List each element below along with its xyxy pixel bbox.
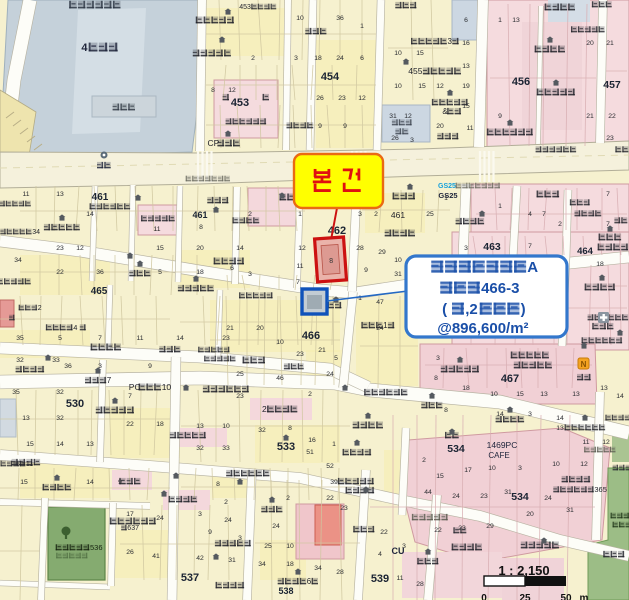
svg-text:10: 10 [286, 543, 294, 550]
svg-text:13: 13 [512, 17, 520, 24]
svg-text:1: 1 [298, 211, 302, 218]
svg-text:24: 24 [326, 371, 334, 378]
svg-text:11: 11 [26, 461, 33, 468]
svg-text:534: 534 [447, 443, 465, 455]
svg-text:7: 7 [528, 243, 532, 250]
svg-text:14: 14 [556, 415, 564, 422]
svg-text:24: 24 [376, 325, 384, 332]
svg-text:14: 14 [616, 393, 624, 400]
svg-text:10: 10 [552, 461, 560, 468]
svg-text:11: 11 [396, 575, 403, 582]
svg-text:34: 34 [14, 257, 22, 264]
svg-text:14: 14 [176, 335, 184, 342]
svg-text:12: 12 [436, 83, 444, 90]
svg-text:26: 26 [316, 95, 324, 102]
svg-text:21: 21 [318, 347, 326, 354]
svg-text:7: 7 [542, 211, 546, 218]
svg-text:13: 13 [540, 391, 548, 398]
svg-text:11: 11 [466, 125, 473, 132]
svg-text:18: 18 [286, 561, 294, 568]
svg-text:2: 2 [38, 305, 42, 312]
svg-text:463: 463 [483, 241, 501, 253]
svg-text:8: 8 [329, 258, 333, 265]
svg-text:536: 536 [90, 543, 103, 552]
svg-text:8: 8 [199, 224, 203, 231]
svg-text:31: 31 [394, 271, 402, 278]
svg-text:10: 10 [394, 50, 402, 57]
svg-text:461: 461 [391, 210, 405, 220]
svg-text:6: 6 [360, 55, 364, 62]
svg-text:3: 3 [518, 465, 522, 472]
svg-text:2: 2 [248, 211, 252, 218]
svg-text:15: 15 [436, 473, 444, 480]
svg-text:GS25: GS25 [438, 191, 457, 200]
svg-text:455: 455 [408, 66, 422, 76]
svg-text:18: 18 [196, 269, 204, 276]
svg-text:466-3: 466-3 [481, 280, 519, 297]
svg-text:25: 25 [236, 371, 244, 378]
svg-text:34: 34 [258, 561, 266, 568]
svg-text:36: 36 [64, 363, 72, 370]
svg-text:9: 9 [208, 529, 212, 536]
svg-text:8: 8 [434, 375, 438, 382]
svg-text:7: 7 [107, 376, 112, 385]
svg-text:26: 26 [126, 549, 134, 556]
svg-text:36: 36 [336, 15, 344, 22]
svg-text:456: 456 [512, 76, 530, 88]
svg-text:22: 22 [126, 421, 134, 428]
svg-text:18: 18 [314, 55, 322, 62]
svg-text:15: 15 [26, 441, 34, 448]
svg-text:15: 15 [462, 103, 470, 110]
svg-text:10: 10 [222, 423, 230, 430]
svg-text:24: 24 [272, 523, 280, 530]
svg-text:461: 461 [192, 210, 207, 220]
svg-text:28: 28 [336, 569, 344, 576]
svg-text:GS25: GS25 [438, 183, 456, 190]
svg-text:14: 14 [86, 211, 94, 218]
svg-text:31: 31 [566, 507, 574, 514]
svg-text:465: 465 [91, 286, 108, 297]
svg-text:3: 3 [248, 271, 252, 278]
svg-text:12: 12 [580, 461, 588, 468]
svg-text:@896,600/m²: @896,600/m² [437, 320, 528, 337]
svg-text:8: 8 [211, 87, 215, 94]
svg-text:N: N [581, 360, 587, 369]
svg-text:6: 6 [307, 577, 312, 586]
svg-text:9: 9 [148, 363, 152, 370]
svg-text:12: 12 [404, 113, 412, 120]
svg-text:32: 32 [196, 445, 204, 452]
svg-text:14: 14 [56, 441, 64, 448]
svg-text:8: 8 [288, 425, 292, 432]
svg-text:20: 20 [586, 40, 594, 47]
svg-text:,2: ,2 [465, 301, 478, 318]
svg-text:1: 1 [498, 17, 502, 24]
svg-text:24: 24 [336, 55, 344, 62]
svg-text:464: 464 [577, 246, 594, 257]
svg-text:23: 23 [222, 335, 230, 342]
svg-text:4: 4 [81, 42, 88, 54]
svg-text:2: 2 [558, 221, 562, 228]
svg-text:5: 5 [58, 335, 62, 342]
svg-text:24: 24 [156, 515, 164, 522]
svg-text:453: 453 [231, 97, 249, 109]
svg-text:CAFE: CAFE [488, 451, 509, 460]
svg-text:12: 12 [358, 95, 366, 102]
svg-text:3: 3 [528, 411, 532, 418]
svg-text:33: 33 [222, 445, 230, 452]
svg-text:3: 3 [358, 211, 362, 218]
svg-text:36: 36 [96, 269, 104, 276]
svg-text:32: 32 [258, 427, 266, 434]
svg-text:0: 0 [481, 593, 487, 600]
svg-text:462: 462 [328, 225, 346, 237]
svg-text:13: 13 [572, 391, 580, 398]
svg-text:530: 530 [66, 398, 84, 410]
svg-text:20: 20 [256, 325, 264, 332]
svg-text:12: 12 [602, 439, 610, 446]
svg-text:25: 25 [264, 543, 272, 550]
svg-text:23: 23 [480, 493, 488, 500]
svg-text:533: 533 [277, 441, 295, 453]
svg-text:17: 17 [126, 511, 134, 518]
svg-text:10: 10 [394, 83, 402, 90]
svg-text:(: ( [442, 301, 447, 318]
svg-text:23: 23 [340, 505, 348, 512]
svg-text:28: 28 [416, 581, 424, 588]
svg-text:7: 7 [606, 191, 610, 198]
svg-text:2: 2 [224, 499, 228, 506]
svg-text:32: 32 [56, 389, 64, 396]
svg-text:17: 17 [464, 467, 472, 474]
svg-text:22: 22 [326, 495, 334, 502]
svg-text:24: 24 [224, 517, 232, 524]
svg-text:52: 52 [326, 463, 334, 470]
svg-text:35: 35 [16, 335, 24, 342]
svg-text:): ) [521, 301, 526, 318]
svg-text:A: A [527, 259, 538, 276]
svg-text:15: 15 [418, 83, 426, 90]
svg-text:21: 21 [606, 40, 614, 47]
svg-text:39: 39 [330, 479, 338, 486]
svg-text:13: 13 [600, 385, 608, 392]
svg-text:537: 537 [181, 572, 199, 584]
svg-text:637: 637 [127, 525, 139, 532]
svg-text:23: 23 [56, 245, 64, 252]
svg-text:22: 22 [434, 527, 442, 534]
svg-text:4: 4 [73, 323, 77, 332]
svg-text:23: 23 [458, 525, 466, 532]
svg-text:24: 24 [452, 493, 460, 500]
svg-text:20: 20 [436, 123, 444, 130]
svg-text:15: 15 [156, 245, 164, 252]
svg-text:538: 538 [278, 586, 293, 596]
svg-text:10: 10 [296, 15, 304, 22]
svg-text:28: 28 [356, 245, 364, 252]
svg-text:11: 11 [296, 263, 303, 270]
svg-text:12: 12 [76, 245, 84, 252]
svg-text:3: 3 [448, 37, 453, 46]
svg-text:20: 20 [196, 245, 204, 252]
svg-text:20: 20 [526, 511, 534, 518]
svg-text:16: 16 [462, 40, 470, 47]
svg-text:10: 10 [488, 465, 496, 472]
svg-text:13: 13 [86, 441, 94, 448]
svg-text:10: 10 [276, 339, 284, 346]
svg-text:3: 3 [402, 543, 406, 550]
svg-text:9: 9 [364, 267, 368, 274]
svg-text:29: 29 [378, 249, 386, 256]
svg-text:3: 3 [436, 355, 440, 362]
svg-text:10: 10 [394, 257, 402, 264]
svg-text:13: 13 [22, 415, 30, 422]
svg-text:15: 15 [516, 391, 524, 398]
svg-text:23: 23 [296, 351, 304, 358]
svg-text:3: 3 [198, 511, 202, 518]
svg-text:41: 41 [152, 553, 160, 560]
svg-text:454: 454 [321, 71, 340, 83]
svg-text:24: 24 [544, 495, 552, 502]
svg-text:m: m [580, 593, 589, 600]
svg-text:25: 25 [426, 211, 434, 218]
svg-text:12: 12 [228, 87, 236, 94]
svg-text:26: 26 [391, 135, 399, 142]
svg-text:34: 34 [314, 565, 322, 572]
svg-text:16: 16 [308, 437, 316, 444]
svg-text:31: 31 [389, 113, 397, 120]
svg-text:12: 12 [298, 245, 306, 252]
svg-text:1: 1 [332, 441, 336, 448]
svg-text:9: 9 [343, 123, 347, 130]
svg-text:13: 13 [462, 63, 470, 70]
svg-text:3: 3 [238, 535, 242, 542]
svg-text:6: 6 [230, 265, 234, 272]
svg-text:34: 34 [32, 229, 40, 236]
svg-text:7: 7 [128, 393, 132, 400]
svg-text:42: 42 [196, 555, 204, 562]
svg-text:3: 3 [464, 245, 468, 252]
svg-text:9: 9 [118, 479, 122, 486]
svg-text:19: 19 [462, 83, 470, 90]
svg-text:21: 21 [586, 113, 594, 120]
svg-text:457: 457 [603, 79, 621, 91]
svg-text:4: 4 [378, 551, 382, 558]
svg-text:11: 11 [22, 191, 29, 198]
svg-text:1: 1 [383, 321, 388, 330]
svg-text:11: 11 [153, 226, 160, 233]
svg-text:44: 44 [424, 489, 432, 496]
svg-text:18: 18 [596, 261, 604, 268]
svg-text:6: 6 [464, 17, 468, 24]
svg-text:50: 50 [560, 593, 572, 600]
svg-text:466: 466 [302, 330, 320, 342]
svg-text:11: 11 [582, 439, 589, 446]
svg-text:14: 14 [236, 245, 244, 252]
svg-text:10: 10 [490, 391, 498, 398]
svg-text:18: 18 [462, 385, 470, 392]
svg-text:7: 7 [98, 335, 102, 342]
svg-text:29: 29 [486, 523, 494, 530]
svg-text:11: 11 [136, 335, 143, 342]
svg-text:15: 15 [20, 479, 28, 486]
svg-text:5: 5 [158, 269, 162, 276]
svg-text:539: 539 [371, 573, 389, 585]
svg-text:35: 35 [12, 389, 20, 396]
svg-text:32: 32 [56, 415, 64, 422]
svg-text:453: 453 [239, 4, 251, 11]
svg-text:14: 14 [496, 411, 504, 418]
svg-text:8: 8 [216, 481, 220, 488]
svg-text:22: 22 [608, 113, 616, 120]
svg-text:13: 13 [196, 423, 204, 430]
svg-text:8: 8 [444, 407, 448, 414]
svg-text:2: 2 [374, 211, 378, 218]
svg-text:23: 23 [236, 393, 244, 400]
svg-text:2: 2 [262, 404, 267, 414]
svg-text:15: 15 [416, 50, 424, 57]
svg-text:1469PC: 1469PC [487, 440, 518, 450]
svg-text:33: 33 [52, 357, 60, 364]
svg-text:10: 10 [162, 382, 172, 392]
svg-text:1: 1 [444, 195, 448, 202]
svg-text:1: 1 [360, 23, 364, 30]
svg-text:23: 23 [338, 95, 346, 102]
svg-text:22: 22 [56, 269, 64, 276]
svg-text:47: 47 [376, 299, 384, 306]
svg-text:13: 13 [56, 191, 64, 198]
svg-text:365: 365 [594, 485, 607, 494]
svg-text:1: 1 [498, 203, 502, 210]
svg-text:21: 21 [226, 325, 234, 332]
svg-text:22: 22 [380, 529, 388, 536]
svg-text:18: 18 [156, 421, 164, 428]
svg-text:3: 3 [294, 55, 298, 62]
svg-text:2: 2 [422, 457, 426, 464]
svg-text:51: 51 [306, 449, 314, 456]
svg-text:7: 7 [296, 279, 300, 286]
svg-text:32: 32 [16, 357, 24, 364]
svg-text:2: 2 [308, 391, 312, 398]
svg-text:3: 3 [410, 137, 414, 144]
svg-text:5: 5 [334, 355, 338, 362]
svg-text:467: 467 [501, 373, 519, 385]
svg-text:23: 23 [606, 135, 614, 142]
svg-text:25: 25 [519, 593, 531, 600]
svg-text:13: 13 [556, 425, 564, 432]
svg-text:2: 2 [251, 55, 255, 62]
svg-text:31: 31 [504, 489, 512, 496]
svg-text:46: 46 [276, 375, 284, 382]
svg-text:9: 9 [498, 113, 502, 120]
svg-text:31: 31 [228, 557, 236, 564]
svg-text:4: 4 [528, 211, 532, 218]
svg-text:461: 461 [92, 192, 109, 203]
svg-text:14: 14 [86, 479, 94, 486]
svg-text:2: 2 [286, 495, 290, 502]
svg-text:534: 534 [511, 491, 529, 503]
svg-text:9: 9 [318, 123, 322, 130]
